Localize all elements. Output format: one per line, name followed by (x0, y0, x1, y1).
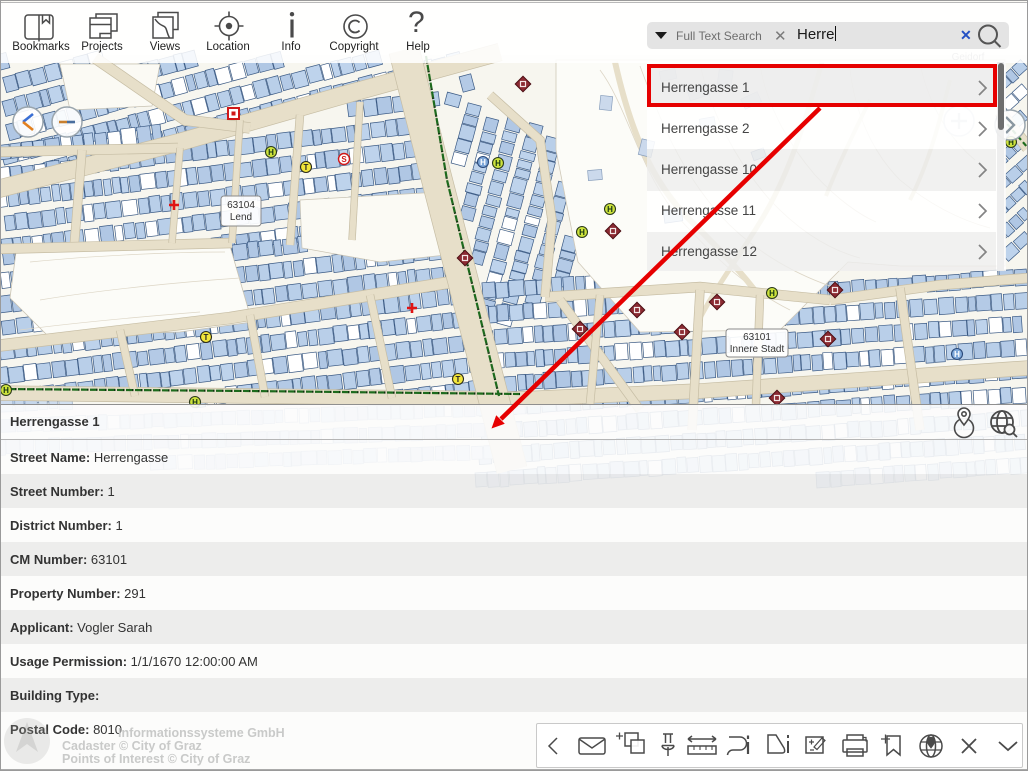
svg-text:H: H (579, 228, 585, 237)
svg-text:H: H (954, 350, 960, 359)
svg-text:T: T (456, 375, 461, 384)
svg-text:63104: 63104 (227, 200, 255, 211)
svg-text:H: H (769, 289, 775, 298)
svg-text:H: H (480, 158, 486, 167)
svg-text:H: H (3, 386, 9, 395)
svg-text:T: T (304, 163, 309, 172)
svg-text:T: T (204, 333, 209, 342)
svg-text:H: H (607, 205, 613, 214)
svg-text:Innere Stadt: Innere Stadt (730, 344, 785, 355)
svg-text:S: S (341, 155, 347, 164)
svg-text:63101: 63101 (743, 332, 771, 343)
svg-text:H: H (268, 148, 274, 157)
svg-text:H: H (495, 159, 501, 168)
svg-text:Lend: Lend (230, 212, 252, 223)
